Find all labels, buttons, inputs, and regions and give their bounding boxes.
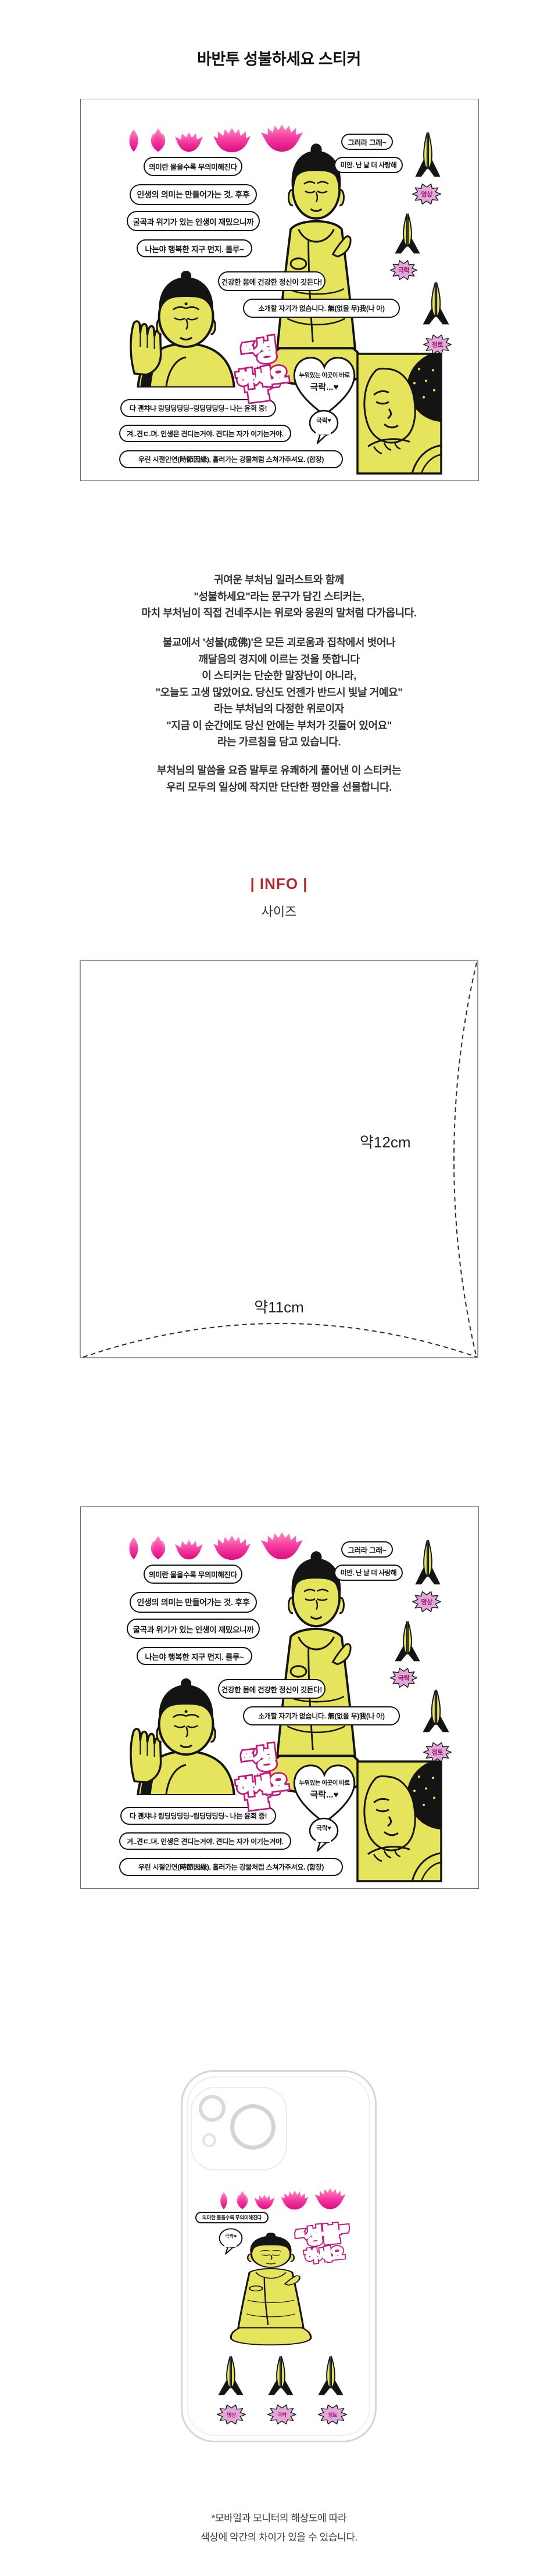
info-section-header: | INFO |: [0, 875, 558, 893]
sticker-pill: 나는야 행복한 지구 먼지. 룰루~: [137, 1647, 252, 1665]
sticker-pill: 소개할 자기가 없습니다. 無(없을 무)我(나 아): [243, 299, 400, 318]
reclining-buddha-illustration: [356, 353, 442, 478]
lotus-badge-pureland: 정토: [318, 2404, 347, 2425]
sticker-pill: 인생의 의미는 만들어가는 것. 후후: [130, 1592, 257, 1613]
size-diagram: 약12cm 약11cm: [80, 960, 478, 1358]
lotus-badge-meditation: 명상: [217, 2404, 246, 2425]
sticker-pill: 인생의 의미는 만들어가는 것. 후후: [130, 184, 257, 205]
praying-hands-icon: [317, 2355, 345, 2399]
lotus-budding-icon: [148, 127, 168, 156]
height-measurement-label: 약12cm: [360, 1131, 411, 1152]
sticker-pill: 우린 시절인연(時節因緣), 흘러가는 강물처럼 스쳐가주셔요. (합장): [119, 1858, 343, 1876]
sticker-pill: 의미란 물을수록 무의미해진다: [144, 1565, 242, 1584]
sticker-pill: 미안. 난 날 더 사랑해: [334, 157, 403, 173]
sticker-pill: 나는야 행복한 지구 먼지. 룰루~: [137, 239, 252, 257]
praying-hands-icon: [414, 1539, 442, 1588]
praying-hands-icon: [394, 213, 421, 257]
praying-hands-icon: [414, 131, 442, 181]
praying-hands-icon: [421, 281, 450, 328]
footer-note: *모바일과 모니터의 해상도에 따라 색상에 약간의 차이가 있을 수 있습니다…: [0, 2509, 558, 2547]
sticker-pill: 겨..견ㄷ.뎌. 인생은 견디는거야. 견디는 자가 이기는거야.: [119, 425, 291, 442]
seongbul-logo: “성불” “성불” 하세요 하세요: [223, 1734, 296, 1800]
sticker-sheet: 의미란 물을수록 무의미해진다 인생의 의미는 만들어가는 것. 후후 굴곡과 …: [81, 99, 478, 480]
speech-bubble-sticker: 극락♥: [309, 1817, 339, 1853]
sticker-pill: 소개할 자기가 없습니다. 無(없을 무)我(나 아): [243, 1706, 400, 1725]
camera-lens-icon: [230, 2104, 276, 2150]
sticker-pill: 겨..견ㄷ.뎌. 인생은 견디는거야. 견디는 자가 이기는거야.: [119, 1832, 291, 1850]
description-paragraph-3: 부처님의 말씀을 요즘 말투로 유쾌하게 풀어낸 이 스티커는 우리 모두의 일…: [0, 762, 558, 795]
sticker-pill: 그러라 그래~: [341, 1541, 393, 1558]
lotus-badge-paradise: 극락: [390, 1667, 417, 1688]
sticker-sheet-image-1: 의미란 물을수록 무의미해진다 인생의 의미는 만들어가는 것. 후후 굴곡과 …: [80, 99, 479, 481]
seongbul-logo: “성불” “성불” 하세요 하세요: [292, 2216, 355, 2272]
lotus-bud-icon: [126, 1536, 141, 1563]
lotus-budding-icon: [235, 2190, 250, 2213]
lotus-half-bloom-icon: [174, 130, 204, 156]
lotus-bud-icon: [126, 128, 141, 156]
lotus-bloom-icon: [212, 126, 252, 156]
phone-case-image: 의미란 물을수록 무의미해진다 극락♥ “성불” “성불” 하세요 하세요 명상…: [181, 2070, 377, 2442]
camera-flash-icon: [202, 2133, 216, 2147]
praying-hands-icon: [217, 2355, 245, 2399]
lotus-half-bloom-icon: [174, 1537, 204, 1563]
camera-lens-icon: [199, 2095, 226, 2122]
sticker-pill: 굴곡과 위기가 있는 인생이 재밌으니까: [127, 1619, 260, 1639]
description-paragraph-1: 귀여운 부처님 일러스트와 함께 "성불하세요"라는 문구가 담긴 스티커는, …: [0, 572, 558, 622]
lotus-bloom-icon: [280, 2189, 309, 2213]
lotus-badge-pureland: 정토: [423, 1742, 452, 1763]
sticker-sheet-image-2: 의미란 물을수록 무의미해진다 인생의 의미는 만들어가는 것. 후후 굴곡과 …: [80, 1506, 479, 1889]
lotus-badge-pureland: 정토: [423, 334, 452, 355]
lotus-half-bloom-icon: [253, 2193, 276, 2213]
sticker-pill: 건강한 몸에 건강한 정신이 깃든다!: [218, 1679, 325, 1699]
description-paragraph-2: 불교에서 '성불(成佛)'은 모든 괴로움과 집착에서 벗어나 깨달음의 경지에…: [0, 634, 558, 751]
sticker-sheet: 의미란 물을수록 무의미해진다 인생의 의미는 만들어가는 것. 후후 굴곡과 …: [81, 1507, 478, 1888]
lotus-bud-icon: [218, 2191, 230, 2213]
lotus-badge-paradise: 극락: [267, 2404, 296, 2425]
praying-hands-icon: [421, 1689, 450, 1736]
praying-hands-icon: [267, 2355, 295, 2399]
sticker-pill: 그러라 그래~: [341, 134, 393, 150]
sticker-pill: 의미란 물을수록 무의미해진다: [195, 2212, 269, 2223]
lotus-full-bloom-icon: [314, 2187, 346, 2213]
sticker-pill: 미안. 난 날 더 사랑해: [334, 1565, 403, 1581]
lotus-badge-meditation: 명상: [412, 183, 441, 205]
sticker-pill: 건강한 몸에 건강한 정신이 깃든다!: [218, 271, 325, 291]
seongbul-logo: “성불” “성불” 하세요 하세요: [223, 327, 296, 392]
lotus-badge-paradise: 극락: [390, 260, 417, 281]
speech-bubble-sticker: 극락♥: [309, 409, 339, 445]
speech-bubble-sticker: 극락♥: [219, 2227, 243, 2255]
reclining-buddha-illustration: [356, 1760, 442, 1885]
width-measurement-label: 약11cm: [81, 1296, 477, 1317]
size-section-label: 사이즈: [0, 902, 558, 920]
lotus-budding-icon: [148, 1535, 168, 1563]
product-detail-page: 바반투 성불하세요 스티커 의미란 물을수록 무의미해진다 인생의 의미는 만들…: [0, 0, 558, 2576]
praying-hands-icon: [394, 1620, 421, 1665]
sticker-pill: 우린 시절인연(時節因緣), 흘러가는 강물처럼 스쳐가주셔요. (합장): [119, 450, 343, 468]
product-title: 바반투 성불하세요 스티커: [0, 46, 558, 69]
sticker-pill: 굴곡과 위기가 있는 인생이 재밌으니까: [127, 211, 260, 231]
lotus-badge-meditation: 명상: [412, 1591, 441, 1613]
sticker-pill: 의미란 물을수록 무의미해진다: [144, 157, 242, 176]
lotus-bloom-icon: [212, 1534, 252, 1563]
